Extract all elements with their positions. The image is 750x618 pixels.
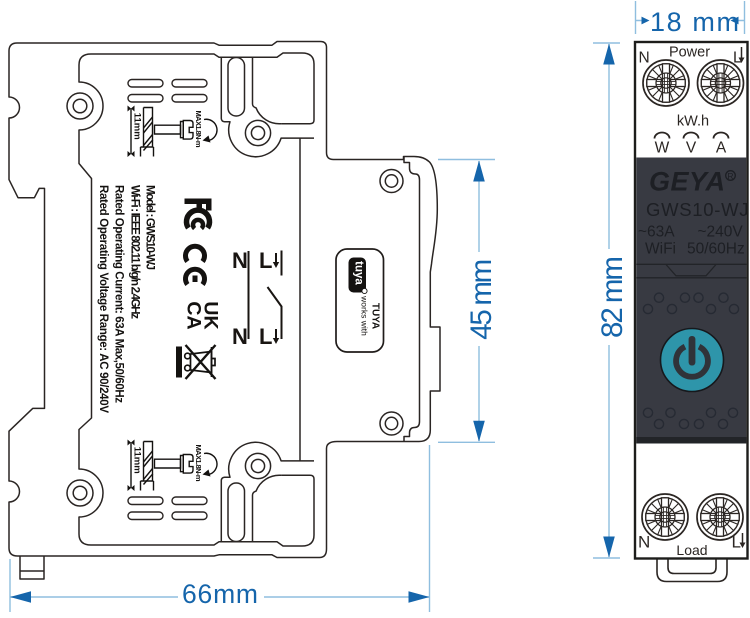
svg-text:MAX1.8N-m: MAX1.8N-m <box>194 111 203 148</box>
svg-text:A: A <box>716 140 727 157</box>
svg-text:GEYA: GEYA <box>649 167 726 197</box>
svg-text:~63A: ~63A <box>638 224 675 241</box>
svg-text:L: L <box>732 533 741 552</box>
svg-text:GWS10-WJ: GWS10-WJ <box>646 199 749 220</box>
svg-text:WiFi: WiFi <box>645 241 676 258</box>
svg-text:N: N <box>639 50 650 67</box>
svg-text:tuya: tuya <box>353 261 365 285</box>
svg-text:18 mm: 18 mm <box>650 7 739 37</box>
svg-text:V: V <box>686 140 697 157</box>
svg-text:11mm: 11mm <box>132 113 143 140</box>
svg-text:L: L <box>259 324 272 349</box>
svg-text:TUYA: TUYA <box>370 303 381 329</box>
svg-text:Rated Operating Voltage Range:: Rated Operating Voltage Range: AC 90/240… <box>97 185 109 413</box>
svg-text:R: R <box>727 171 733 181</box>
svg-text:kW.h: kW.h <box>677 114 709 130</box>
svg-text:Load: Load <box>676 542 707 558</box>
svg-text:works with: works with <box>360 295 370 336</box>
svg-text:45 mm: 45 mm <box>465 259 498 340</box>
svg-text:N: N <box>232 248 248 273</box>
svg-text:Wi-Fi : IEEE 802.11 b/g/n 2.4G: Wi-Fi : IEEE 802.11 b/g/n 2.4GHz <box>129 185 141 319</box>
svg-text:82 mm: 82 mm <box>596 256 629 338</box>
svg-text:W: W <box>655 140 670 157</box>
svg-text:Model : GWS10-WJ: Model : GWS10-WJ <box>144 185 156 270</box>
svg-text:Rated Operating Current: 63A: Rated Operating Current: 63A Max,50/60Hz <box>113 185 125 403</box>
svg-text:66mm: 66mm <box>182 579 258 609</box>
svg-text:L: L <box>259 248 272 273</box>
svg-text:~240V: ~240V <box>698 224 744 241</box>
svg-text:Power: Power <box>669 45 710 61</box>
svg-text:N: N <box>232 324 248 349</box>
svg-text:N: N <box>638 533 650 552</box>
svg-text:50/60Hz: 50/60Hz <box>687 241 745 258</box>
svg-text:CA: CA <box>183 301 205 329</box>
